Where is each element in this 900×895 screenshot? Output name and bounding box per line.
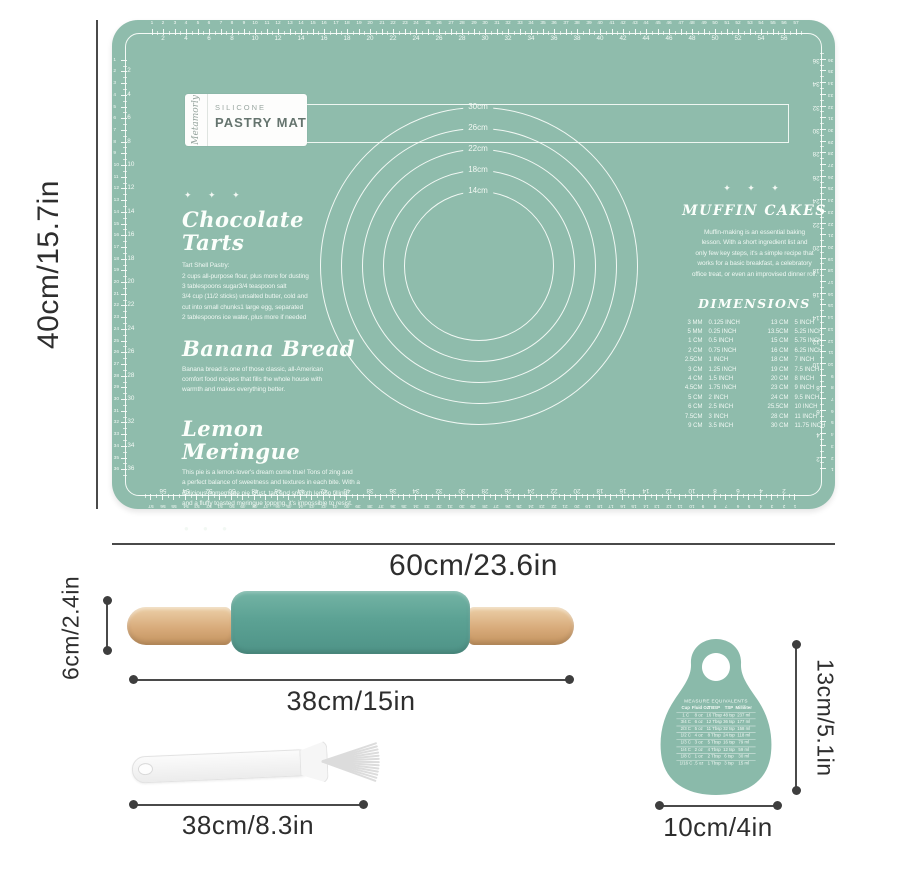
logo-text: SILICONE PASTRY MAT [208,94,307,146]
recipe-title-chocolate-tarts: Chocolate Tarts [182,208,372,254]
recipe-column: ✦ ✦ ✦ Chocolate Tarts Tart Shell Pastry:… [182,190,372,533]
dimensions-table-cell: 16 CM [756,347,792,356]
scraper-table-row: 3/4 C6 oz12 Tbsp36 tsp177 ml [676,719,755,726]
dim-label-mat-width: 60cm/23.6in [112,549,835,583]
dim-endpoint-dot [773,801,782,810]
scraper-table-cell: 1 oz [692,754,706,760]
dimensions-table-cell: 13 CM [756,319,792,328]
scraper-table-cell: 2 Tbsp [706,754,723,760]
recipe-title-lemon-meringue: Lemon Meringue [182,417,372,463]
scraper-table-header: CupFluid OZTBSPTSPMilliliter [676,705,755,711]
scraper-table-cell: 12 Tbsp [706,719,723,725]
scraper-table-cell: 16 Tbsp [706,712,723,718]
dimensions-table-cell: 7 INCH [792,356,830,365]
dim-endpoint-dot [792,640,801,649]
scraper-table-cell: 16 tsp [723,740,735,746]
scraper-table-cell: 1/8 C [680,754,692,760]
dimensions-table-cell: 4 CM [680,375,706,384]
dimensions-table-row: 4 CM1.5 INCH20 CM8 INCH [672,375,837,384]
scraper-table-cell: 24 tsp [723,733,735,739]
circle-label: 14cm [463,186,493,196]
dimensions-table-cell: 0.75 INCH [706,347,756,356]
circle-label: 22cm [463,144,493,154]
dimensions-table-cell: 1 INCH [706,356,756,365]
scraper-table-cell: 8 oz [692,712,706,718]
dimensions-table-cell: 19 CM [756,366,792,375]
dim-label-pin-height: 6cm/2.4in [52,562,90,694]
dim-line-scraper-width [659,805,777,807]
dimensions-table-row: 3 CM1.25 INCH19 CM7.5 INCH [672,366,837,375]
scraper-table-cell: 11 Tbsp [706,726,723,732]
circle-label: 18cm [463,165,493,175]
scraper-table-cell: 6 tsp [723,754,735,760]
scraper-table-cell: 237 ml [735,712,752,718]
scraper-table-cell: 1 C [680,712,692,718]
scraper-table-cell: 3 oz [692,740,706,746]
dimensions-table-cell: 1 CM [680,337,706,346]
scraper-table-cell: 32 tsp [723,726,735,732]
dimensions-table-cell: 7.5 INCH [792,366,830,375]
dimensions-table-cell: 11.75 INCH [792,422,830,431]
scraper-header-cell: Milliliter [735,705,752,711]
dimensions-table-rows: 3 MM0.125 INCH13 CM5 INCH5 MM0.25 INCH13… [672,319,837,432]
scraper-table-cell: 1/4 C [680,747,692,753]
scraper-header-cell: TBSP [706,705,723,711]
dimensions-table-cell: 11 INCH [792,413,830,422]
scraper-table-cell: 1/16 C [680,761,692,767]
dim-line-pin-length [133,679,569,681]
scraper-table-cell: 3/4 C [680,719,692,725]
dimensions-table-cell: 5.25 INCH [792,328,830,337]
scraper-header-cell: Fluid OZ [692,705,706,711]
dimensions-table-cell: 6.25 INCH [792,347,830,356]
scraper-table-cell: 6 oz [692,719,706,725]
scraper-table-cell: 177 ml [735,719,752,725]
scraper-table-cell: 30 ml [735,754,752,760]
recipe-title-banana-bread: Banana Bread [182,337,372,360]
scraper-table-cell: 1/2 C [680,733,692,739]
scraper-table-cell: 118 ml [735,733,752,739]
dimensions-table-row: 2.5CM1 INCH18 CM7 INCH [672,356,837,365]
dimensions-table-cell: 25.5CM [756,403,792,412]
scraper-table-row: 1 C8 oz16 Tbsp48 tsp237 ml [676,712,755,719]
recipe-body-banana-bread: Banana bread is one of those classic, al… [182,365,372,396]
dimensions-table-cell: 30 CM [756,422,792,431]
dimensions-table-cell: 2 INCH [706,394,756,403]
logo-brand-strip: Metamorly [185,94,208,146]
recipe-body-lemon-meringue: This pie is a lemon-lover's dream come t… [182,468,372,510]
scraper-table-cell: 3 tsp [723,761,735,767]
diamond-markers-right: ✦ ✦ ✦ [672,183,837,194]
scraper-table-cell: 36 tsp [723,719,735,725]
dimensions-table-cell: 2.5 INCH [706,403,756,412]
dimensions-table-cell: 15 CM [756,337,792,346]
muffin-cakes-title: MUFFIN CAKES [672,203,837,219]
dimensions-table-cell: 9.5 INCH [792,394,830,403]
dimensions-table-row: 7.5CM3 INCH28 CM11 INCH [672,413,837,422]
dim-endpoint-dot [359,800,368,809]
dim-endpoint-dot [129,675,138,684]
dim-label-scraper-width: 10cm/4in [640,812,796,843]
brand-name: Metamorly [191,95,201,145]
circle-14cm [404,191,554,341]
dimensions-table-cell: 9 CM [680,422,706,431]
dimensions-table-row: 3 MM0.125 INCH13 CM5 INCH [672,319,837,328]
dimensions-table-row: 5 CM2 INCH24 CM9.5 INCH [672,394,837,403]
dimensions-table-cell: 5 MM [680,328,706,337]
dimensions-table-cell: 0.25 INCH [706,328,756,337]
dimensions-table-cell: 2 CM [680,347,706,356]
dimensions-table-cell: 1.25 INCH [706,366,756,375]
dimensions-table-row: 2 CM0.75 INCH16 CM6.25 INCH [672,347,837,356]
scraper-table-cell: 158 ml [735,726,752,732]
dimensions-table-cell: 8 INCH [792,375,830,384]
scraper-table-cell: 2 oz [692,747,706,753]
dimensions-table-row: 1 CM0.5 INCH15 CM5.75 INCH [672,337,837,346]
dim-label-brush-length: 38cm/8.3in [133,810,363,841]
pastry-brush [127,732,379,801]
dot-markers-bottom: ● ● ● [184,524,372,533]
scraper-table-cell: 1/3 C [680,740,692,746]
recipe-body-chocolate-tarts: Tart Shell Pastry: 2 cups all-purpose fl… [182,261,372,323]
dimensions-table-cell: 6 CM [680,403,706,412]
dim-line-mat-width [112,543,835,545]
scraper-table-cell: 12 tsp [723,747,735,753]
dimensions-table-cell: 20 CM [756,375,792,384]
dimensions-table-row: 6 CM2.5 INCH25.5CM10 INCH [672,403,837,412]
dim-label-scraper-height: 13cm/5.1in [806,650,844,786]
dimensions-title: DIMENSIONS [672,296,837,311]
rolling-guide-rect [305,104,789,143]
dim-line-scraper-height [795,645,797,791]
dimensions-table-cell: 1.5 INCH [706,375,756,384]
dimensions-table-cell: 4.5CM [680,384,706,393]
scraper-table-cell: 4 Tbsp [706,747,723,753]
scraper-table-cell: 4 oz [692,733,706,739]
dimensions-table-row: 5 MM0.25 INCH13.5CM5.25 INCH [672,328,837,337]
dimensions-table-cell: 2.5CM [680,356,706,365]
dimensions-table-cell: 10 INCH [792,403,830,412]
scraper-table-cell: 8 Tbsp [706,733,723,739]
dimensions-table-cell: 5 INCH [792,319,830,328]
scraper-table-row: 1/16 C.5 oz1 Tbsp3 tsp15 ml [676,760,755,767]
dimensions-table-cell: 13.5CM [756,328,792,337]
scraper-table-row: 1/3 C3 oz5 Tbsp16 tsp79 ml [676,739,755,746]
dimensions-table-cell: 5.75 INCH [792,337,830,346]
muffin-column: ✦ ✦ ✦ MUFFIN CAKES Muffin-making is an e… [672,183,837,431]
dim-endpoint-dot [103,596,112,605]
scraper-table-row: 1/4 C2 oz4 Tbsp12 tsp59 ml [676,746,755,753]
logo-box: Metamorly SILICONE PASTRY MAT [185,94,307,146]
scraper-table-cell: 5 Tbsp [706,740,723,746]
pin-handle-left [127,607,233,645]
scraper-table-cell: 1 Tbsp [706,761,723,767]
dimensions-table-cell: 7.5CM [680,413,706,422]
dim-line-brush-length [133,804,363,806]
dimensions-table-cell: 24 CM [756,394,792,403]
scraper-table-rows: CupFluid OZTBSPTSPMilliliter1 C8 oz16 Tb… [676,705,755,766]
dimensions-table-cell: 3.5 INCH [706,422,756,431]
dimensions-table-cell: 23 CM [756,384,792,393]
scraper-table-cell: 59 ml [735,747,752,753]
dimensions-table-row: 9 CM3.5 INCH30 CM11.75 INCH [672,422,837,431]
dim-endpoint-dot [129,800,138,809]
dim-endpoint-dot [565,675,574,684]
dimensions-table-cell: 0.125 INCH [706,319,756,328]
scraper-table-cell: 79 ml [735,740,752,746]
scraper-table-cell: 48 tsp [723,712,735,718]
scraper-table-row: 1/8 C1 oz2 Tbsp6 tsp30 ml [676,753,755,760]
diamond-markers-top: ✦ ✦ ✦ [184,190,372,201]
pin-handle-right [466,607,574,645]
logo-silicone-label: SILICONE [215,103,307,112]
scraper-table-title: MEASURE EQUIVALENTS [676,699,755,704]
dimensions-table-cell: 5 CM [680,394,706,403]
dimensions-table-cell: 3 CM [680,366,706,375]
dim-endpoint-dot [103,646,112,655]
logo-pastry-mat-label: PASTRY MAT [215,115,307,130]
dim-line-mat-height [96,20,98,509]
dimensions-table-cell: 3 INCH [706,413,756,422]
muffin-cakes-body: Muffin-making is an essential baking les… [692,228,817,280]
scraper-table-row: 1/2 C4 oz8 Tbsp24 tsp118 ml [676,732,755,739]
scraper-table-cell: 15 ml [735,761,752,767]
scraper-conversion-table: MEASURE EQUIVALENTS CupFluid OZTBSPTSPMi… [676,699,755,767]
dimensions-table-cell: 18 CM [756,356,792,365]
pin-barrel [231,591,470,654]
dim-label-mat-height: 40cm/15.7in [26,130,72,400]
dimensions-table-cell: 3 MM [680,319,706,328]
dimensions-table-cell: 28 CM [756,413,792,422]
scraper-table-cell: 2/3 C [680,726,692,732]
dim-line-pin-height [106,601,108,651]
product-dimension-sheet: 1223445667889101011121213141415161617181… [0,0,900,895]
dimensions-table-cell: 1.75 INCH [706,384,756,393]
dimensions-table-row: 4.5CM1.75 INCH23 CM9 INCH [672,384,837,393]
scraper-table-cell: 5 oz [692,726,706,732]
scraper-header-cell: TSP [723,705,735,711]
dimensions-table-cell: 0.5 INCH [706,337,756,346]
brush-handle [131,749,312,784]
dimensions-table-cell: 9 INCH [792,384,830,393]
pastry-mat: 1223445667889101011121213141415161617181… [112,20,835,509]
scraper-header-cell: Cup [680,705,692,711]
scraper-table-cell: .5 oz [692,761,706,767]
dim-endpoint-dot [792,786,801,795]
scraper-table-row: 2/3 C5 oz11 Tbsp32 tsp158 ml [676,725,755,732]
dim-label-pin-length: 38cm/15in [133,686,569,717]
dim-endpoint-dot [655,801,664,810]
